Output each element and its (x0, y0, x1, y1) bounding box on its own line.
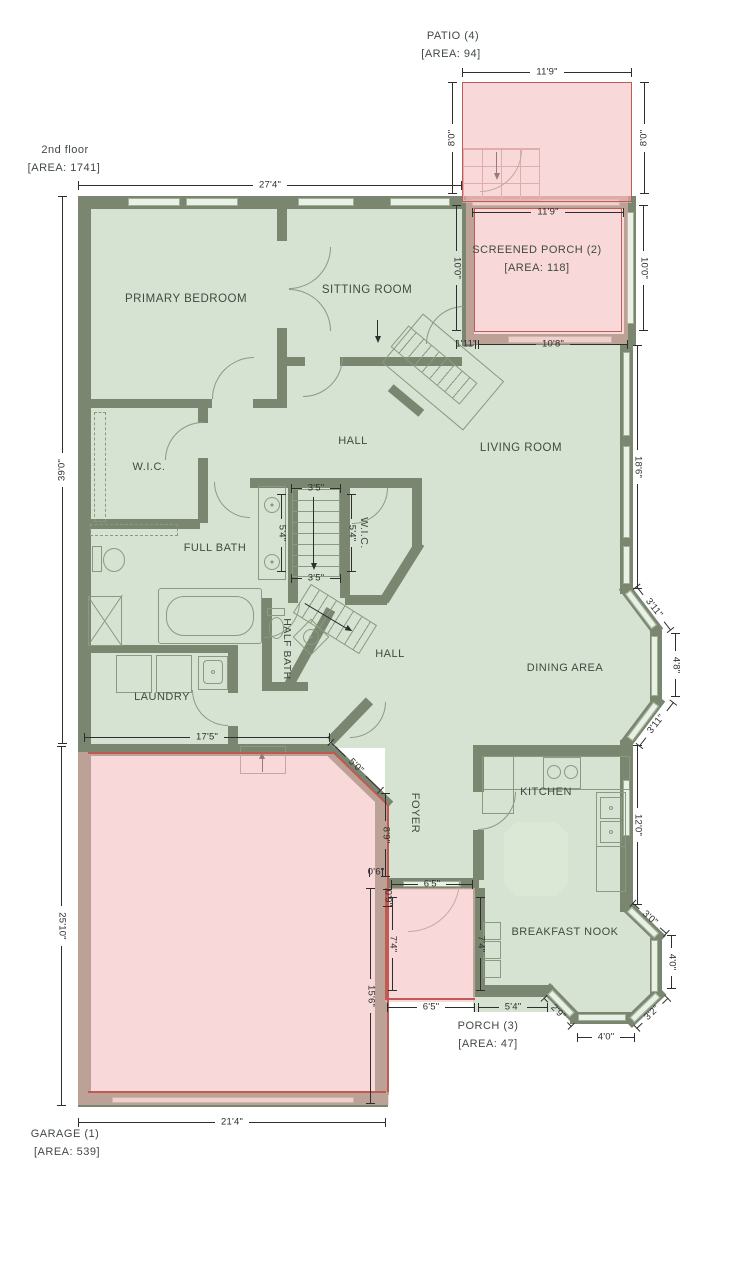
label-room-wic-2: W.I.C. (358, 517, 370, 549)
label-room-sitting-room: SITTING ROOM (322, 284, 412, 296)
label-room-half-bath: HALF BATH (281, 618, 293, 679)
label-porch3-area: [AREA: 47] (458, 1038, 517, 1050)
dim-tick (58, 196, 67, 197)
dim-line (393, 958, 394, 991)
dim-text: 8'9" (381, 827, 392, 844)
dim-text: 3'5" (308, 483, 325, 494)
fixture-circle (564, 765, 578, 779)
dim-line (78, 185, 253, 186)
dim-tick (385, 1118, 386, 1127)
dim-tick (382, 793, 391, 794)
dim-line (84, 737, 190, 738)
wall (228, 645, 238, 693)
dim-line (644, 152, 645, 194)
fixture-circle (303, 629, 319, 645)
dim-line (638, 484, 639, 589)
dim-line (452, 82, 453, 124)
dim-line (62, 946, 63, 1106)
dim-tick (340, 484, 341, 493)
wall (473, 830, 484, 880)
fixture-circle (609, 830, 613, 834)
label-room-wic-1: W.I.C. (133, 461, 166, 473)
wall (253, 399, 287, 408)
dim-line (472, 212, 531, 213)
dim-line (391, 884, 418, 885)
dim-tick (367, 1103, 376, 1104)
window-strip (623, 446, 630, 538)
dim-tick (634, 345, 643, 346)
dim-tick (640, 193, 649, 194)
dim-tick (631, 68, 632, 77)
dim-tick (472, 880, 473, 889)
dim-tick (627, 340, 628, 349)
dim-tick (634, 745, 643, 746)
dim-line (577, 1037, 592, 1038)
dim-tick (478, 1003, 479, 1012)
fixture-circle (609, 806, 613, 810)
dim-line (393, 897, 394, 930)
dim-tick (78, 181, 79, 190)
dim-tick (640, 82, 649, 83)
label-garage-area: [AREA: 539] (34, 1146, 100, 1158)
dim-line (644, 82, 645, 124)
dim-text: 6'5" (424, 879, 441, 890)
dim-line (564, 72, 632, 73)
dim-line (62, 487, 63, 744)
closet-dash (94, 412, 106, 522)
dim-tick (278, 571, 287, 572)
dim-text: 7'4" (388, 936, 399, 953)
dim-tick (668, 988, 677, 989)
dim-line (282, 547, 283, 572)
wall (198, 458, 208, 523)
fixture-rect (156, 655, 192, 693)
dim-line (644, 285, 645, 331)
wall (262, 682, 308, 691)
dim-text: 5'4" (347, 525, 358, 542)
dim-line (352, 494, 353, 519)
dim-line (565, 212, 624, 213)
label-patio-title: PATIO (4) (427, 30, 479, 42)
dim-line (638, 842, 639, 905)
outdoor-porch-3 (385, 888, 475, 1002)
dim-tick (389, 990, 398, 991)
wall (277, 209, 287, 241)
dim-line (291, 578, 302, 579)
x-line (88, 594, 123, 645)
red-line (88, 1091, 386, 1093)
dim-text: 11'9" (537, 207, 558, 218)
dim-text: 39'0" (57, 459, 68, 481)
dim-text: 25'10" (57, 912, 68, 940)
closet-dash (90, 524, 178, 536)
window-strip (623, 352, 630, 436)
dim-line (481, 897, 482, 930)
floor-plan: 11'9"8'0"8'0"27'4"11'9"10'0"10'0"1'11"10… (0, 0, 742, 1280)
dim-line (371, 888, 372, 979)
dim-line (638, 745, 639, 808)
red-outline (462, 82, 632, 202)
dim-tick (472, 208, 473, 217)
dim-text: 10'0" (452, 257, 463, 279)
dim-line (620, 1037, 635, 1038)
dim-tick (461, 181, 462, 190)
dim-text: 7'4" (476, 936, 487, 953)
label-room-hall-upper: HALL (338, 435, 368, 447)
dim-text: 10'0" (639, 257, 650, 279)
dim-text: 15'6" (366, 985, 377, 1007)
arrow-line (378, 320, 379, 337)
dim-text: 0'6" (368, 867, 385, 878)
fixture-rect (92, 546, 102, 572)
dim-line (676, 679, 677, 697)
dim-tick (474, 1003, 475, 1012)
window-strip (186, 198, 238, 206)
dim-tick (58, 1105, 67, 1106)
dim-text: 5'4" (505, 1002, 522, 1013)
arrow-head (312, 563, 318, 570)
wall (78, 196, 91, 756)
dim-text: 17'5" (196, 732, 218, 743)
dim-tick (278, 494, 287, 495)
dim-tick (340, 574, 341, 583)
dim-tick (389, 897, 398, 898)
window-strip (128, 198, 180, 206)
label-room-laundry: LAUNDRY (134, 691, 190, 703)
dim-line (386, 793, 387, 821)
fixture-circle (547, 765, 561, 779)
dim-line (386, 849, 387, 877)
dim-tick (672, 633, 681, 634)
dim-line (638, 345, 639, 450)
dim-line (527, 1007, 548, 1008)
wall (88, 399, 212, 408)
label-floor-title: 2nd floor (41, 144, 88, 156)
dim-line (445, 1007, 475, 1008)
dim-tick (291, 484, 292, 493)
label-garage-title: GARAGE (1) (31, 1128, 100, 1140)
arrow-head (376, 336, 382, 343)
dim-tick (477, 897, 486, 898)
label-room-dining-area: DINING AREA (527, 662, 603, 674)
label-porch3-title: PORCH (3) (458, 1020, 519, 1032)
dim-text: 8'0" (639, 130, 650, 147)
window-strip (390, 198, 450, 206)
dim-line (371, 1013, 372, 1104)
dim-tick (478, 340, 479, 349)
dim-text: 18'6" (633, 456, 644, 478)
dim-text: 8'0" (447, 130, 458, 147)
dim-tick (387, 1003, 388, 1012)
dim-tick (58, 746, 67, 747)
wall (88, 645, 238, 653)
label-room-full-bath: FULL BATH (184, 542, 247, 554)
fixture-ellipse (103, 548, 125, 572)
window-strip (578, 1014, 626, 1021)
window-strip (298, 198, 354, 206)
dim-tick (672, 696, 681, 697)
dim-text: 4'0" (598, 1032, 615, 1043)
label-floor-area: [AREA: 1741] (28, 162, 101, 174)
dim-line (62, 746, 63, 906)
red-line (88, 752, 336, 754)
dim-text: 27'4" (259, 180, 281, 191)
dim-text: 4'0" (667, 954, 678, 971)
dim-tick (367, 888, 376, 889)
dim-text: 11'9" (536, 67, 557, 78)
window-strip (627, 212, 634, 324)
dim-text: 4'8" (671, 657, 682, 674)
dim-line (249, 1122, 386, 1123)
window-strip (623, 546, 630, 584)
dim-tick (448, 82, 457, 83)
arrow-line (314, 497, 315, 564)
dim-text: 5'4" (277, 525, 288, 542)
dim-tick (547, 1003, 548, 1012)
dim-tick (462, 68, 463, 77)
dim-tick (78, 1118, 79, 1127)
dim-line (457, 205, 458, 251)
dim-tick (58, 743, 67, 744)
dim-line (452, 152, 453, 194)
label-screened-porch-title: SCREENED PORCH (2) (472, 244, 601, 256)
dim-line (287, 185, 462, 186)
dim-tick (348, 571, 357, 572)
dim-line (478, 1007, 499, 1008)
dim-line (676, 633, 677, 651)
wall (473, 985, 553, 997)
dim-tick (329, 733, 330, 742)
dim-tick (668, 935, 677, 936)
dim-tick (453, 205, 462, 206)
dim-line (644, 205, 645, 251)
dim-line (481, 958, 482, 991)
x-line (88, 597, 123, 648)
window-strip (651, 940, 658, 992)
label-room-kitchen: KITCHEN (520, 786, 572, 798)
closet-xbox (88, 596, 122, 646)
dim-tick (477, 990, 486, 991)
dim-tick (640, 330, 649, 331)
label-room-living-room: LIVING ROOM (480, 442, 562, 454)
label-room-foyer: FOYER (409, 793, 421, 833)
dim-line (457, 285, 458, 331)
dim-text: 3'5" (308, 573, 325, 584)
fixture-rect (116, 655, 152, 693)
wall (277, 328, 287, 406)
dim-line (62, 196, 63, 453)
dim-line (78, 1122, 215, 1123)
dim-line (446, 884, 473, 885)
dim-line (291, 488, 302, 489)
dim-text: 6'5" (423, 1002, 440, 1013)
dim-tick (634, 1033, 635, 1042)
fixture-circle (211, 670, 215, 674)
wall (285, 357, 305, 366)
dim-tick (391, 880, 392, 889)
dim-line (352, 547, 353, 572)
label-room-breakfast-nook: BREAKFAST NOOK (511, 926, 618, 938)
dim-line (570, 344, 628, 345)
dim-tick (348, 494, 357, 495)
label-room-primary-bedroom: PRIMARY BEDROOM (125, 293, 247, 305)
fixture-rect (596, 846, 626, 892)
fixture-rect (483, 960, 501, 978)
wall (473, 745, 633, 756)
dim-text: 21'4" (221, 1117, 243, 1128)
dim-tick (453, 330, 462, 331)
dim-text: 1'11" (455, 339, 476, 350)
dim-tick (291, 574, 292, 583)
dim-tick (84, 733, 85, 742)
wall (412, 478, 422, 550)
dim-tick (640, 205, 649, 206)
wall (198, 399, 208, 423)
dim-text: 10'8" (542, 339, 564, 350)
dim-line (282, 494, 283, 519)
dim-text: 12'0" (633, 814, 644, 836)
dim-tick (623, 208, 624, 217)
dim-line (224, 737, 330, 738)
red-line (385, 998, 475, 1000)
label-patio-area: [AREA: 94] (421, 48, 480, 60)
fixture-circle (264, 497, 280, 513)
fixture-rect (166, 596, 254, 636)
dim-tick (448, 193, 457, 194)
dim-line (462, 72, 530, 73)
dim-line (478, 344, 536, 345)
fixture-circle (264, 554, 280, 570)
dim-tick (577, 1033, 578, 1042)
window-strip (651, 636, 658, 696)
dim-line (672, 935, 673, 948)
dim-line (387, 1007, 417, 1008)
wall (345, 595, 387, 605)
label-room-hall-lower: HALL (375, 648, 405, 660)
label-screened-porch-area: [AREA: 118] (504, 262, 569, 274)
